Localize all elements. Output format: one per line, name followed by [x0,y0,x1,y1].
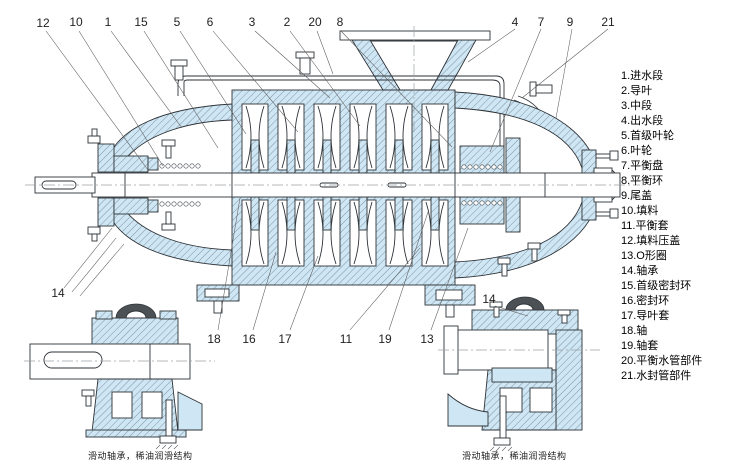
callout-11: 11 [340,332,353,346]
left-flange-bottom [98,198,114,226]
foot-bolt [214,301,222,313]
callout-7: 7 [538,15,545,29]
callout-17: 17 [278,332,292,346]
callout-8: 8 [337,15,344,29]
bolt [596,151,618,160]
callout-6: 6 [207,15,214,29]
callout-15: 15 [134,15,148,29]
main-pump-section [25,26,640,317]
pump-sectional-diagram: 12 10 1 15 5 6 3 2 20 8 4 7 9 21 14 18 1… [0,0,737,470]
detail-shaft [30,344,190,379]
bearing-cap [160,311,176,319]
leader-21 [522,29,608,98]
callout-9: 9 [567,15,574,29]
anchor-bolt-head [494,438,510,445]
legend-item-21: 21.水封管部件 [621,369,735,384]
callout-14-left: 14 [51,286,65,300]
callout-12: 12 [36,16,50,30]
callout-18: 18 [207,332,221,346]
leader-1 [111,31,182,128]
discharge-flange [340,31,490,40]
callout-numbers-top: 12 10 1 15 5 6 3 2 20 8 4 7 9 21 [36,15,615,30]
caption-right-detail: 滑动轴承，稀油润滑结构 [462,449,567,462]
housing-right-wall [556,330,582,430]
bearing-cap [96,311,112,319]
leader-14-left [64,228,112,288]
legend-item-19: 19.轴套 [621,339,735,354]
bolt [596,209,618,218]
foot-right-slot [436,290,462,300]
callout-5: 5 [174,15,181,29]
callout-13: 13 [420,332,434,346]
bracket-arm-line [72,238,116,292]
stuffing-box-bottom [114,198,148,214]
legend-item-15: 15.首级密封环 [621,279,735,294]
leader-12 [46,31,148,170]
bolt [88,227,100,241]
callout-1: 1 [105,15,112,29]
callout-19: 19 [378,332,392,346]
bolt [162,212,175,230]
anchor-bolt-stem [166,400,172,436]
leader-3 [255,31,330,98]
legend-item-2: 2.导叶 [621,84,735,99]
parts-legend: 1.进水段 2.导叶 3.中段 4.出水段 5.首级叶轮 6.叶轮 7.平衡盘 … [621,69,735,384]
legend-item-7: 7.平衡盘 [621,159,735,174]
pedestal-window [142,392,162,418]
foot-left-slot [205,289,229,297]
left-flange-top [98,144,114,172]
legend-item-17: 17.导叶套 [621,309,735,324]
foot-bolt [446,305,454,317]
leader-9 [556,29,572,118]
bolt [162,140,175,158]
oil-cavity [492,368,552,382]
legend-item-6: 6.叶轮 [621,144,735,159]
legend-item-3: 3.中段 [621,99,735,114]
pedestal-window [530,388,552,412]
caption-left-detail: 滑动轴承，稀油润滑结构 [88,449,193,462]
legend-item-1: 1.进水段 [621,69,735,84]
anchor-bolt-stem [500,396,506,438]
callout-20: 20 [308,15,322,29]
legend-item-11: 11.平衡套 [621,219,735,234]
legend-item-9: 9.尾盖 [621,189,735,204]
legend-item-20: 20.平衡水管部件 [621,354,735,369]
pedestal-window [112,392,132,418]
bracket-arm-line [80,244,124,296]
legend-item-8: 8.平衡环 [621,174,735,189]
anchor-bolt-head [160,436,176,443]
legend-item-12: 12.填料压盖 [621,234,735,249]
legend-item-4: 4.出水段 [621,114,735,129]
shaft [25,173,640,197]
callout-21: 21 [601,15,615,29]
detail-view-left [24,304,215,449]
callout-16: 16 [242,332,256,346]
callout-3: 3 [249,15,256,29]
legend-item-14: 14.轴承 [621,264,735,279]
callout-14-right: 14 [482,292,496,306]
gland-bottom [148,200,158,212]
support-bracket [448,394,488,426]
legend-item-13: 13.O形圈 [621,249,735,264]
bolt [88,129,100,143]
bearing-pedestal [92,379,178,432]
bottom-feet [197,285,475,317]
bearing-upper-housing [92,318,178,346]
leader-20 [317,31,333,74]
callout-2: 2 [284,15,291,29]
legend-item-10: 10.填料 [621,204,735,219]
legend-item-5: 5.首级叶轮 [621,129,735,144]
callout-10: 10 [69,15,83,29]
callout-4: 4 [512,15,519,29]
support-bracket [178,392,202,430]
bolt [296,52,314,74]
detail-view-right [438,297,600,451]
stuffing-box-top [114,156,148,172]
legend-item-16: 16.密封环 [621,294,735,309]
gland-top [148,158,158,170]
legend-item-18: 18.轴 [621,324,735,339]
bolt [82,390,94,406]
